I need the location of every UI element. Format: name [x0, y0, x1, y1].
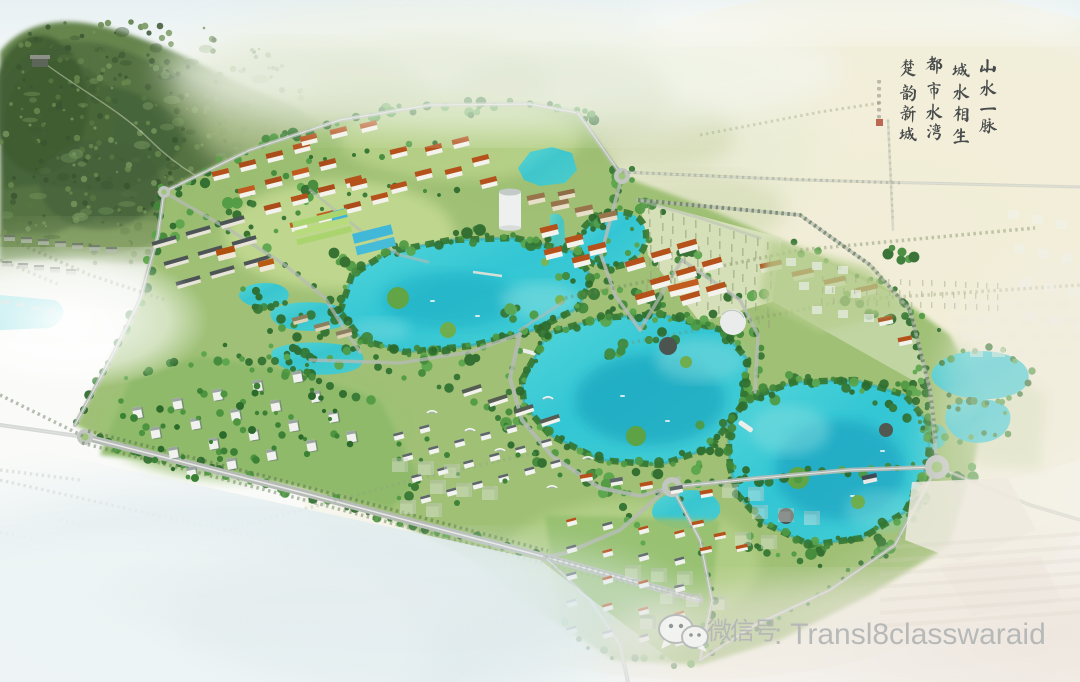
svg-text:: Transl8classwaraid: : Transl8classwaraid — [774, 618, 1046, 651]
